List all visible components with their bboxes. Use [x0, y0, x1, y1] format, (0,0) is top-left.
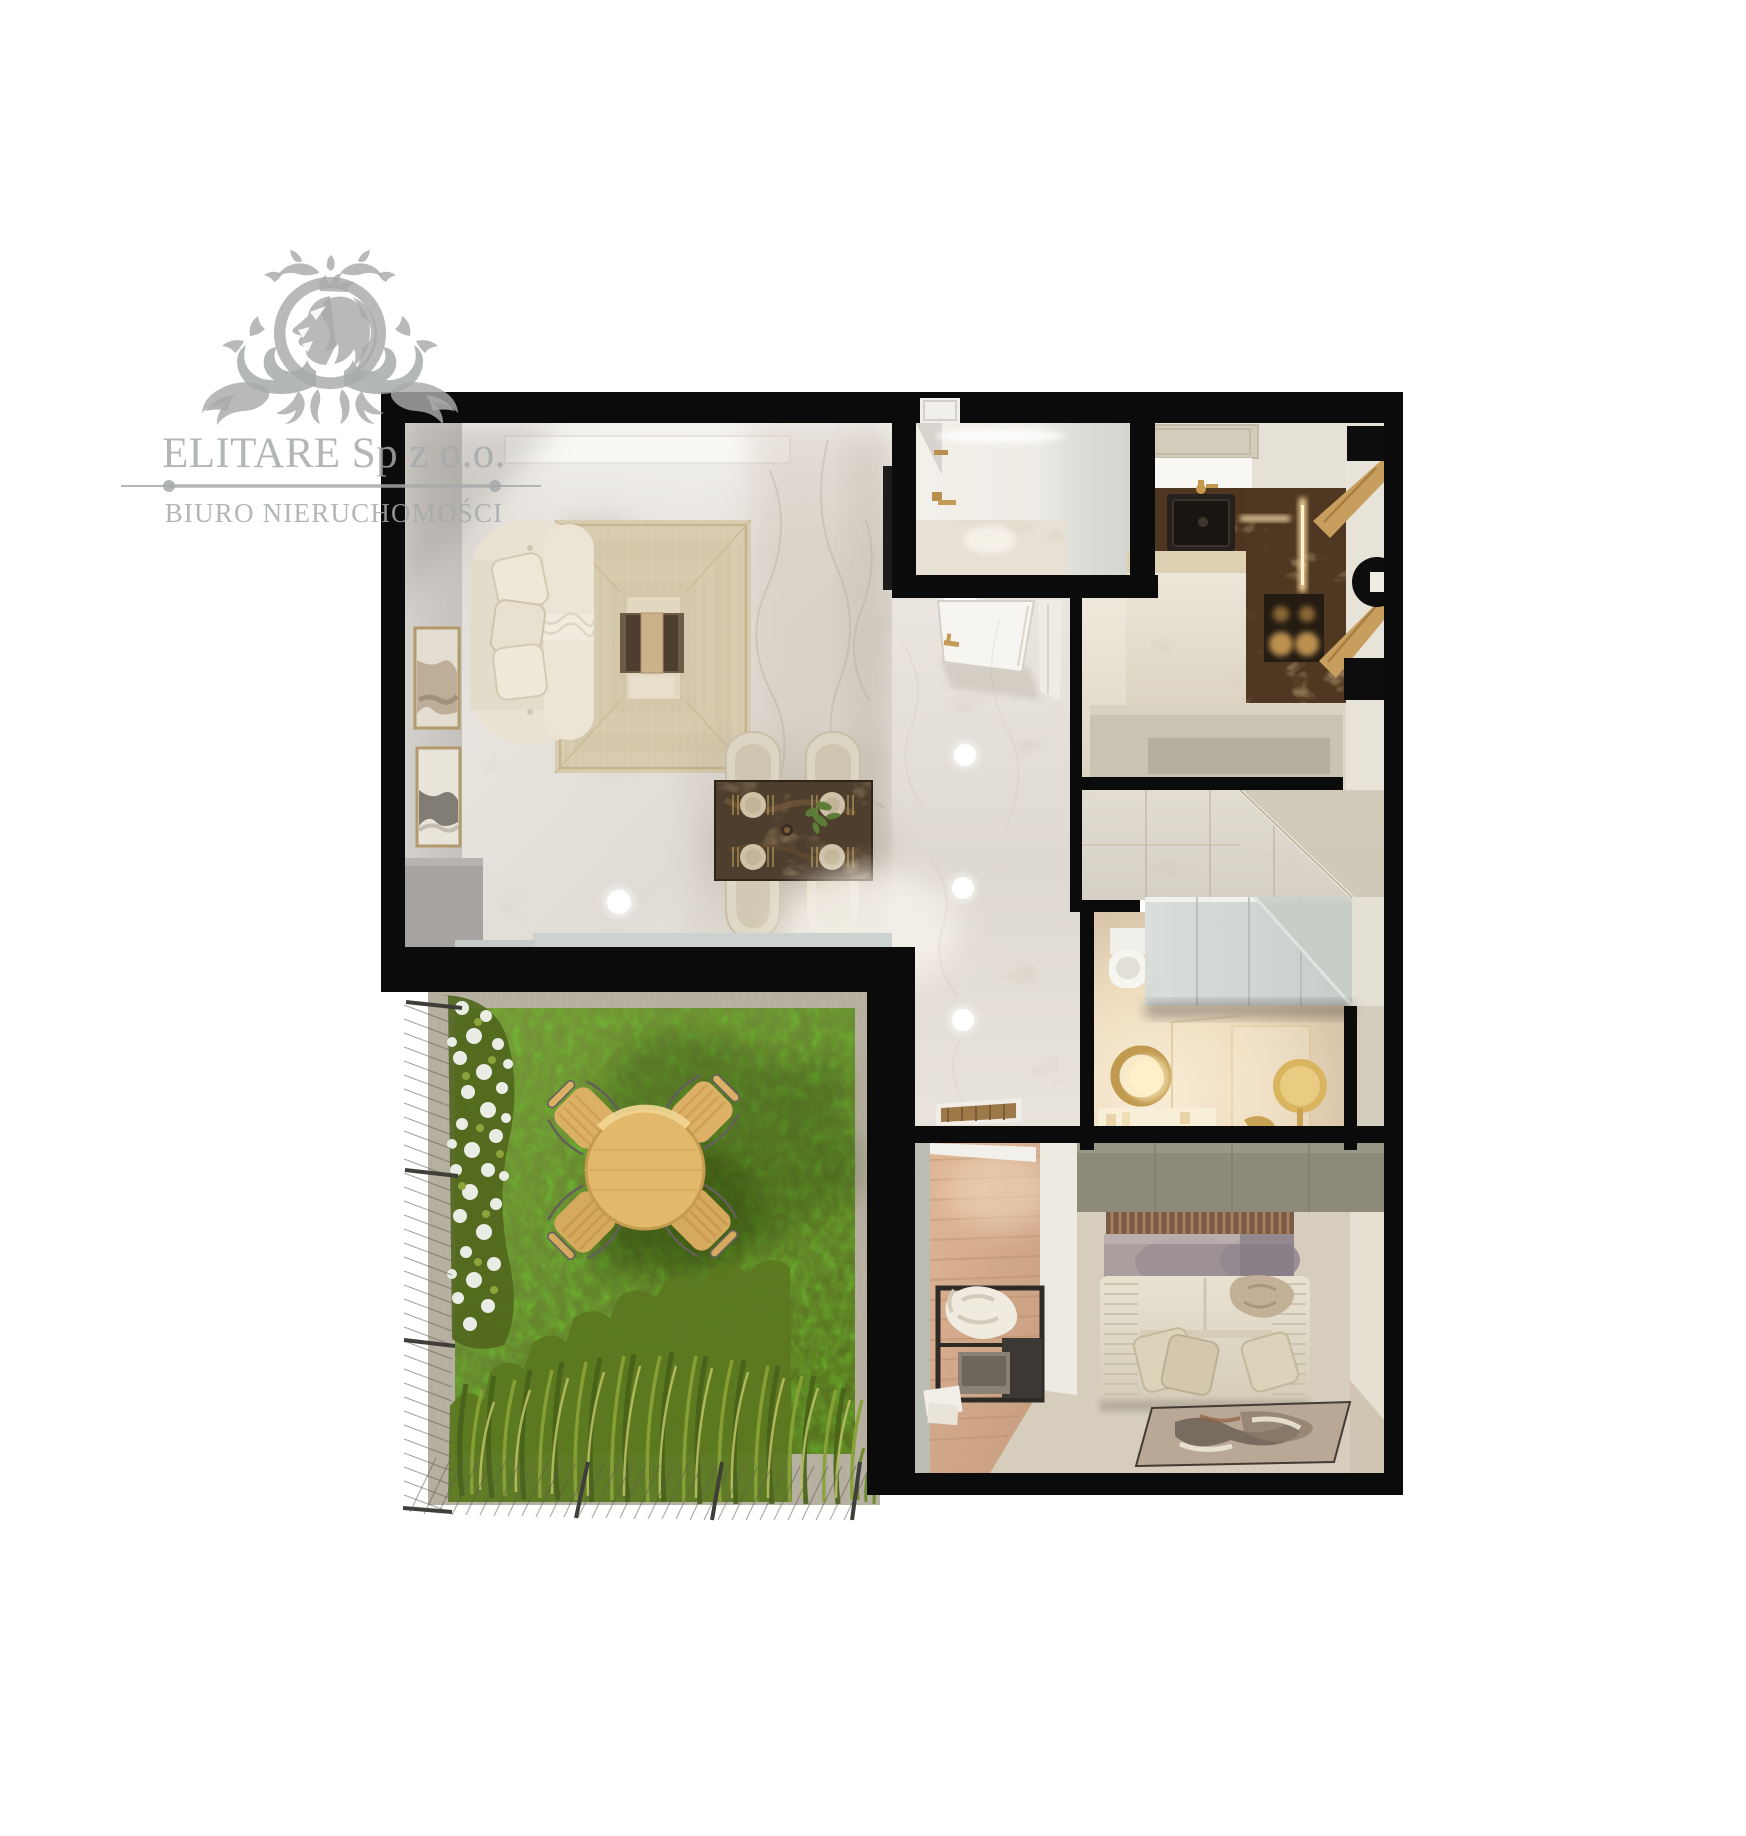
svg-text:ELITARE Sp z o.o.: ELITARE Sp z o.o. [162, 430, 506, 477]
svg-text:BIURO NIERUCHOMOŚCI: BIURO NIERUCHOMOŚCI [165, 498, 504, 528]
